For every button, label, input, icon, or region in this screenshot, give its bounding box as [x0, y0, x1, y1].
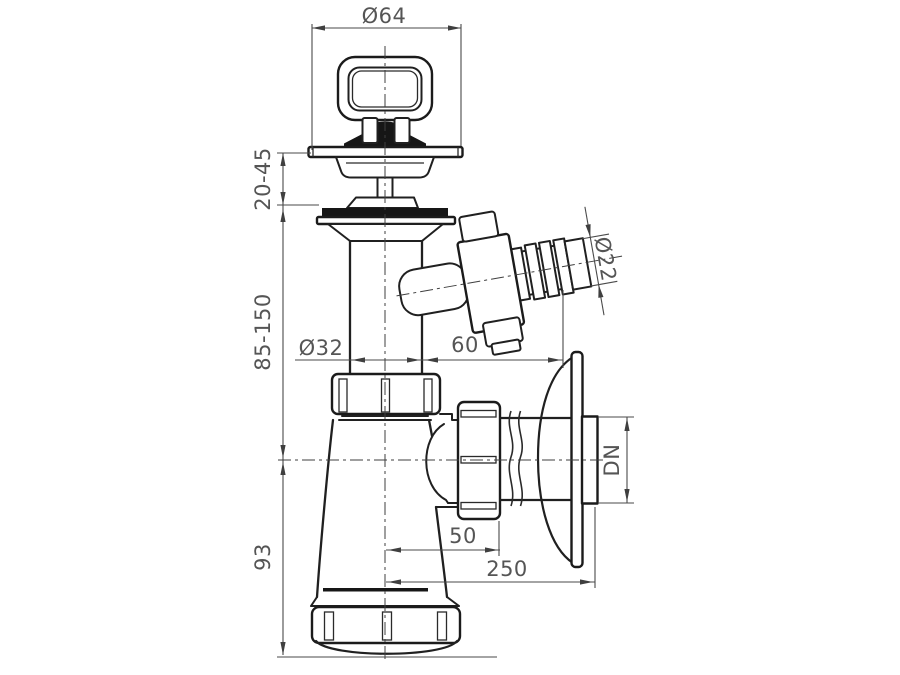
water-level-mark [323, 588, 428, 592]
dim-label-tailpipe-range: 85-150 [251, 293, 275, 370]
dim-label-mount-range: 20-45 [251, 147, 275, 211]
dim-label-nominal-diameter: DN [600, 444, 624, 477]
union-nut [332, 374, 440, 420]
dim-label-top-diameter: Ø64 [362, 4, 407, 28]
lock-flange [317, 198, 455, 242]
dim-label-hose-diameter: Ø22 [590, 235, 621, 283]
bottom-cap [312, 607, 460, 654]
bottle-trap-drawing: Ø22 [0, 0, 900, 675]
technical-drawing-page: Ø22 [0, 0, 900, 675]
outlet-horn [426, 424, 448, 503]
dim-label-outlet-offset: 50 [449, 524, 477, 548]
pipe-break-symbol [509, 411, 512, 506]
dim-label-branch-projection: 60 [451, 333, 479, 357]
dim-label-outlet-length: 250 [486, 557, 528, 581]
branch-socket [396, 261, 471, 318]
dim-label-body-height: 93 [251, 543, 275, 571]
dim-label-tailpipe-diameter: Ø32 [299, 336, 344, 360]
